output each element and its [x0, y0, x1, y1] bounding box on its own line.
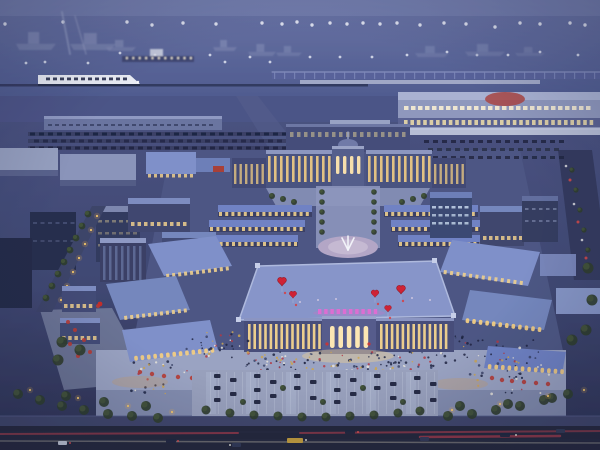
scene-canvas — [0, 0, 600, 450]
scene-root — [0, 0, 600, 450]
atmosphere — [0, 0, 600, 450]
night-aerial-rendering — [0, 0, 600, 450]
vignette — [0, 0, 600, 450]
